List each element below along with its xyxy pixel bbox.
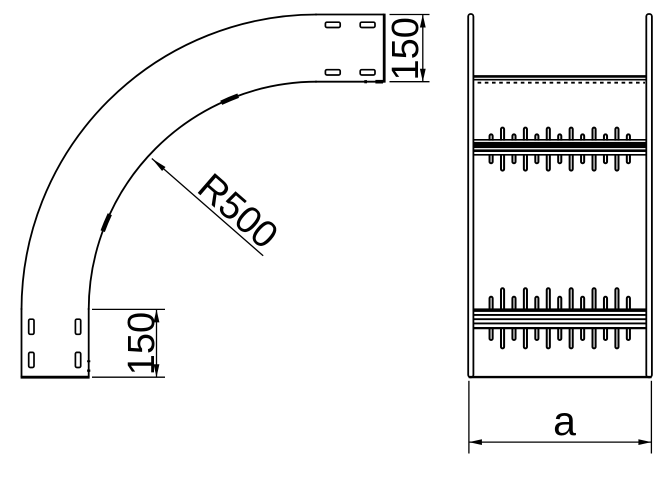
svg-text:150: 150 xyxy=(121,312,163,375)
svg-text:a: a xyxy=(553,398,576,444)
svg-text:150: 150 xyxy=(385,17,427,80)
